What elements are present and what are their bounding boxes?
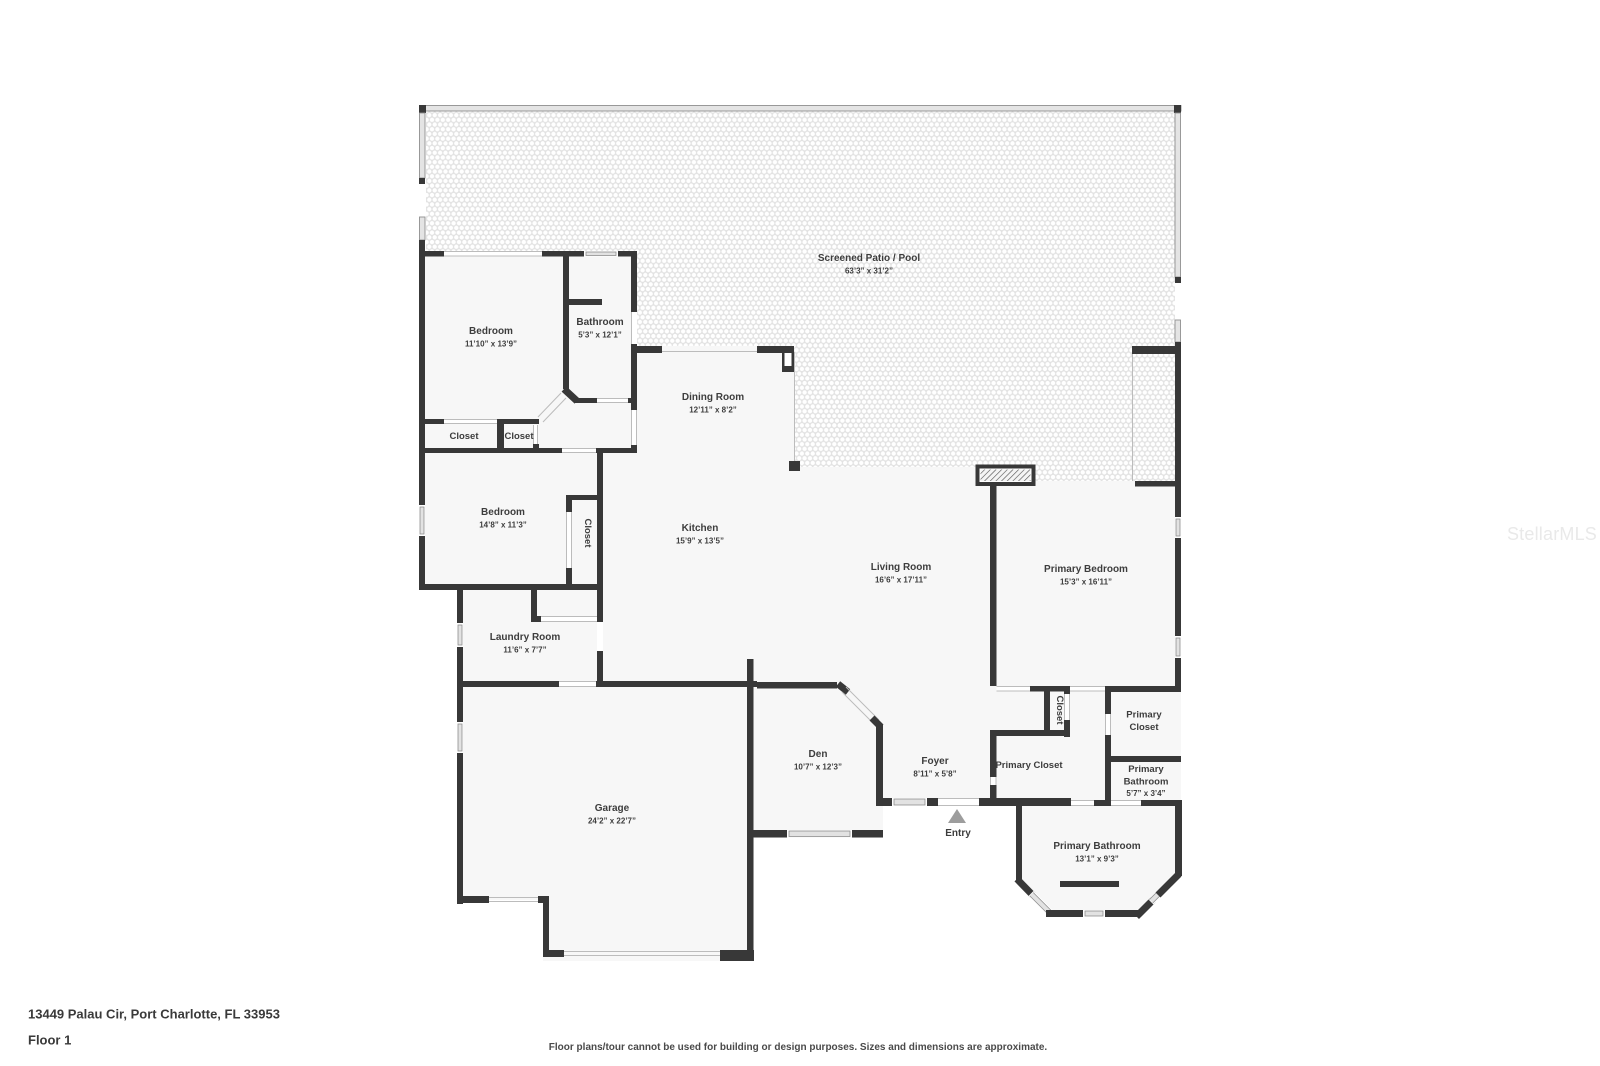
svg-text:Foyer: Foyer xyxy=(921,756,948,767)
svg-text:Primary Closet: Primary Closet xyxy=(995,760,1063,771)
svg-text:Bedroom: Bedroom xyxy=(481,507,525,518)
svg-text:Primary Bedroom: Primary Bedroom xyxy=(1044,564,1128,575)
svg-text:Floor plans/tour cannot be use: Floor plans/tour cannot be used for buil… xyxy=(549,1042,1048,1053)
svg-text:5’7” x 3’4”: 5’7” x 3’4” xyxy=(1126,789,1165,798)
svg-text:15’9” x 13’5”: 15’9” x 13’5” xyxy=(676,537,724,546)
svg-text:Dining Room: Dining Room xyxy=(682,392,744,403)
svg-text:Closet: Closet xyxy=(1054,695,1065,725)
svg-text:Primary: Primary xyxy=(1126,710,1162,721)
svg-text:Bathroom: Bathroom xyxy=(576,317,623,328)
svg-text:10’7” x 12’3”: 10’7” x 12’3” xyxy=(794,763,842,772)
svg-text:StellarMLS: StellarMLS xyxy=(1507,524,1597,544)
svg-text:24’2” x 22’7”: 24’2” x 22’7” xyxy=(588,817,636,826)
svg-text:16’6” x 17’11”: 16’6” x 17’11” xyxy=(875,576,927,585)
svg-text:Closet: Closet xyxy=(504,431,534,442)
svg-text:Closet: Closet xyxy=(449,431,479,442)
svg-text:63’3” x 31’2”: 63’3” x 31’2” xyxy=(845,267,893,276)
svg-text:Laundry Room: Laundry Room xyxy=(490,632,561,643)
svg-text:Floor 1: Floor 1 xyxy=(28,1033,71,1048)
svg-text:14’8” x 11’3”: 14’8” x 11’3” xyxy=(479,521,527,530)
svg-text:13449 Palau Cir, Port Charlott: 13449 Palau Cir, Port Charlotte, FL 3395… xyxy=(28,1007,280,1022)
svg-text:Screened Patio / Pool: Screened Patio / Pool xyxy=(818,253,920,264)
svg-text:15’3” x 16’11”: 15’3” x 16’11” xyxy=(1060,578,1112,587)
svg-text:11’10” x 13’9”: 11’10” x 13’9” xyxy=(465,340,517,349)
svg-text:Primary: Primary xyxy=(1128,764,1164,775)
svg-text:Bedroom: Bedroom xyxy=(469,326,513,337)
svg-text:Closet: Closet xyxy=(1129,722,1159,733)
svg-text:Den: Den xyxy=(809,749,828,760)
svg-text:5’3” x 12’1”: 5’3” x 12’1” xyxy=(578,331,622,340)
svg-text:Living Room: Living Room xyxy=(871,562,932,573)
svg-text:Bathroom: Bathroom xyxy=(1124,777,1169,788)
svg-text:Kitchen: Kitchen xyxy=(682,523,719,534)
svg-text:11’6” x 7’7”: 11’6” x 7’7” xyxy=(503,646,546,655)
svg-text:12’11” x 8’2”: 12’11” x 8’2” xyxy=(689,406,737,415)
svg-text:Primary Bathroom: Primary Bathroom xyxy=(1053,841,1140,852)
svg-text:8’11” x 5’8”: 8’11” x 5’8” xyxy=(913,770,956,779)
svg-text:13’1” x 9’3”: 13’1” x 9’3” xyxy=(1075,855,1119,864)
svg-text:Closet: Closet xyxy=(582,518,593,548)
svg-text:Garage: Garage xyxy=(595,803,630,814)
svg-text:Entry: Entry xyxy=(945,828,971,839)
